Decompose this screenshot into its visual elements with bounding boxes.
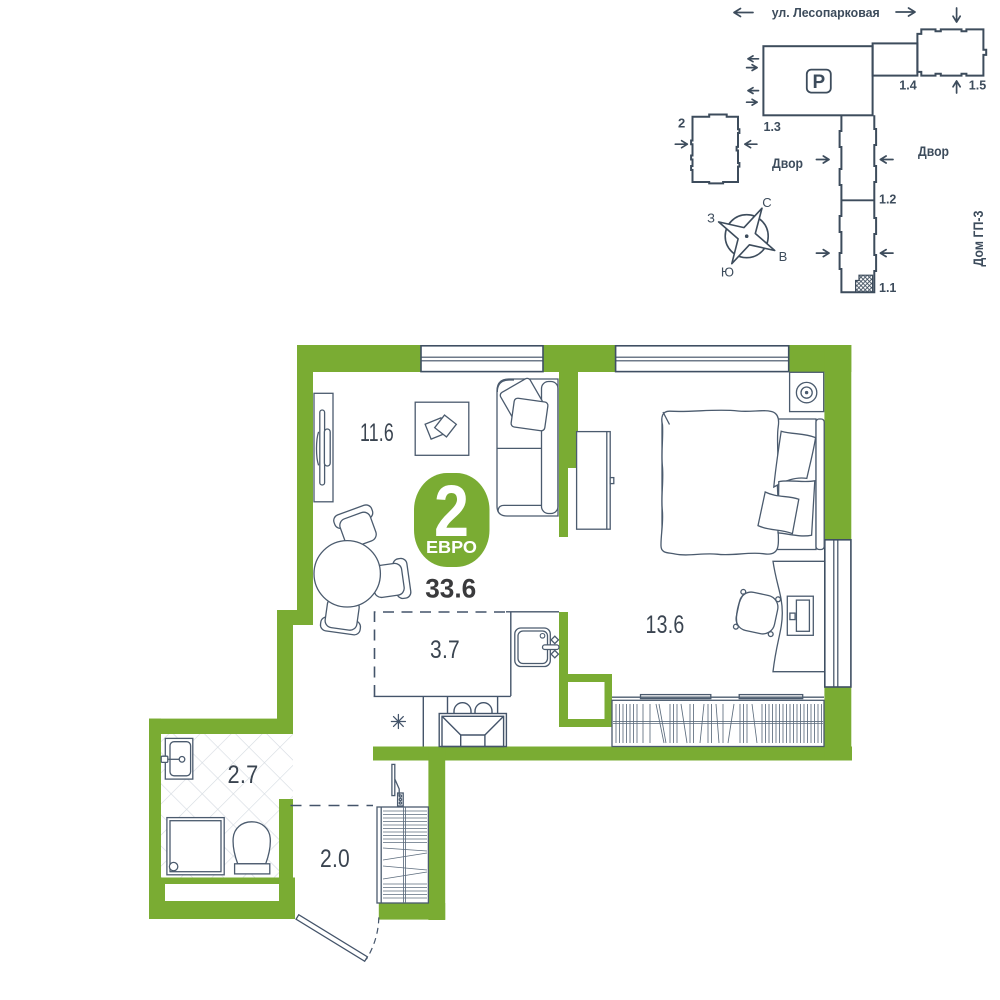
- svg-text:В: В: [779, 249, 788, 264]
- svg-text:С: С: [762, 195, 771, 210]
- svg-text:Дом ГП-3: Дом ГП-3: [971, 210, 986, 266]
- svg-text:ул. Лесопарковая: ул. Лесопарковая: [772, 5, 880, 20]
- svg-text:1.4: 1.4: [899, 79, 916, 93]
- svg-text:Двор: Двор: [772, 156, 803, 171]
- svg-text:33.6: 33.6: [425, 573, 476, 603]
- svg-text:Двор: Двор: [918, 144, 949, 159]
- svg-text:2.0: 2.0: [320, 845, 350, 873]
- svg-text:2.7: 2.7: [228, 761, 259, 789]
- svg-text:1.1: 1.1: [879, 281, 896, 295]
- svg-text:11.6: 11.6: [360, 419, 394, 447]
- svg-text:3.7: 3.7: [430, 636, 460, 664]
- svg-text:2: 2: [678, 116, 685, 131]
- svg-text:Ю: Ю: [721, 265, 734, 280]
- svg-text:P: P: [812, 72, 825, 93]
- svg-text:ЕВРО: ЕВРО: [426, 537, 477, 557]
- svg-text:1.2: 1.2: [879, 193, 896, 207]
- svg-text:13.6: 13.6: [646, 611, 685, 639]
- svg-text:З: З: [707, 211, 715, 226]
- svg-text:1.5: 1.5: [969, 79, 986, 93]
- svg-text:1.3: 1.3: [764, 120, 781, 134]
